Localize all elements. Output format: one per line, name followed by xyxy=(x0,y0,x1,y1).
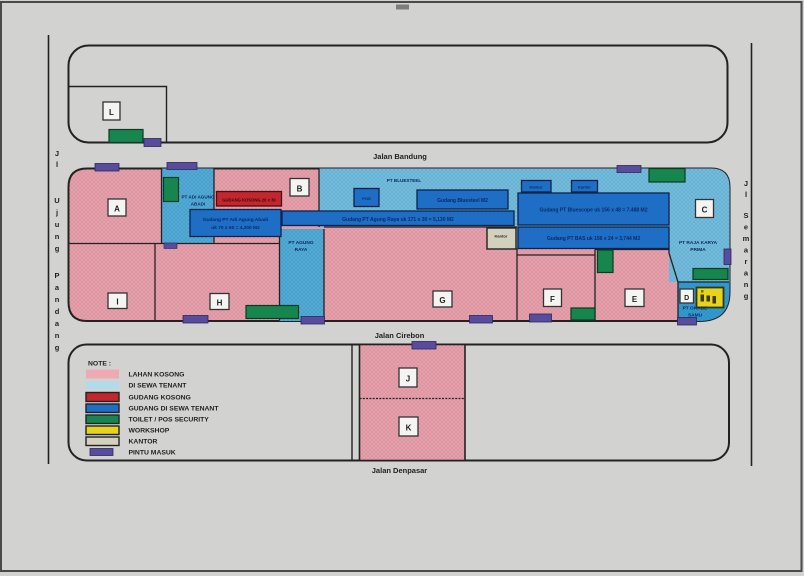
svg-text:uk 70 x 60 = 4,200 M2: uk 70 x 60 = 4,200 M2 xyxy=(211,225,260,231)
svg-text:PT OKABE: PT OKABE xyxy=(683,306,709,312)
svg-text:I: I xyxy=(116,298,118,307)
svg-text:WORKSHOP: WORKSHOP xyxy=(129,428,170,435)
svg-text:Gudang PT Agung Raya uk 171 x: Gudang PT Agung Raya uk 171 x 30 = 5,130… xyxy=(342,217,454,223)
svg-text:PT AGUNG: PT AGUNG xyxy=(288,240,313,246)
svg-text:Kantor: Kantor xyxy=(578,185,591,190)
svg-text:ABADI: ABADI xyxy=(191,202,206,207)
svg-text:D: D xyxy=(684,295,689,302)
svg-text:G: G xyxy=(439,296,445,305)
svg-text:C: C xyxy=(702,206,708,215)
svg-text:GUDANG KOSONG: GUDANG KOSONG xyxy=(129,395,191,402)
svg-text:PT ADI AGUNG: PT ADI AGUNG xyxy=(181,195,215,200)
svg-text:RAYA: RAYA xyxy=(295,247,308,253)
svg-text:Jalan Bandung: Jalan Bandung xyxy=(373,152,427,161)
svg-text:Gudang PT Bluescope uk 156 x 4: Gudang PT Bluescope uk 156 x 48 = 7,488 … xyxy=(540,208,648,214)
svg-text:POS: POS xyxy=(362,196,371,201)
svg-text:PT BLUESTEEL: PT BLUESTEEL xyxy=(387,178,422,183)
svg-text:TOILET / POS SECURITY: TOILET / POS SECURITY xyxy=(129,417,210,424)
svg-text:L: L xyxy=(109,108,114,117)
svg-text:E: E xyxy=(632,295,638,304)
svg-text:Gudang PT BAS uk 156 x 24 = 3,: Gudang PT BAS uk 156 x 24 = 3,744 M2 xyxy=(547,236,640,242)
svg-text:Jalan Denpasar: Jalan Denpasar xyxy=(372,466,428,475)
svg-text:B: B xyxy=(297,185,303,194)
svg-text:GUDANG DI SEWA TENANT: GUDANG DI SEWA TENANT xyxy=(129,406,220,413)
svg-text:Kantor: Kantor xyxy=(530,185,543,190)
svg-text:PINTU MASUK: PINTU MASUK xyxy=(129,450,176,457)
svg-text:NOTE :: NOTE : xyxy=(88,361,111,368)
svg-text:Gudang Bluesteel M2: Gudang Bluesteel M2 xyxy=(437,198,488,204)
svg-text:Kantor: Kantor xyxy=(495,234,508,239)
svg-text:H: H xyxy=(217,298,223,307)
svg-text:DI SEWA TENANT: DI SEWA TENANT xyxy=(129,383,188,390)
svg-text:PT RAJA KARYA: PT RAJA KARYA xyxy=(679,240,718,246)
svg-text:J: J xyxy=(406,375,410,384)
svg-text:K: K xyxy=(406,424,412,433)
svg-text:Jalan Cirebon: Jalan Cirebon xyxy=(375,331,425,340)
svg-text:PRIMA: PRIMA xyxy=(690,247,706,253)
svg-text:KANTOR: KANTOR xyxy=(129,439,158,446)
svg-text:A: A xyxy=(114,205,120,214)
svg-text:F: F xyxy=(550,295,555,304)
svg-text:GUDANG KOSONG 20 x 30: GUDANG KOSONG 20 x 30 xyxy=(222,198,276,203)
svg-text:LAHAN KOSONG: LAHAN KOSONG xyxy=(129,372,185,379)
svg-text:Gudang PT Adi Agung Abadi: Gudang PT Adi Agung Abadi xyxy=(203,217,268,223)
